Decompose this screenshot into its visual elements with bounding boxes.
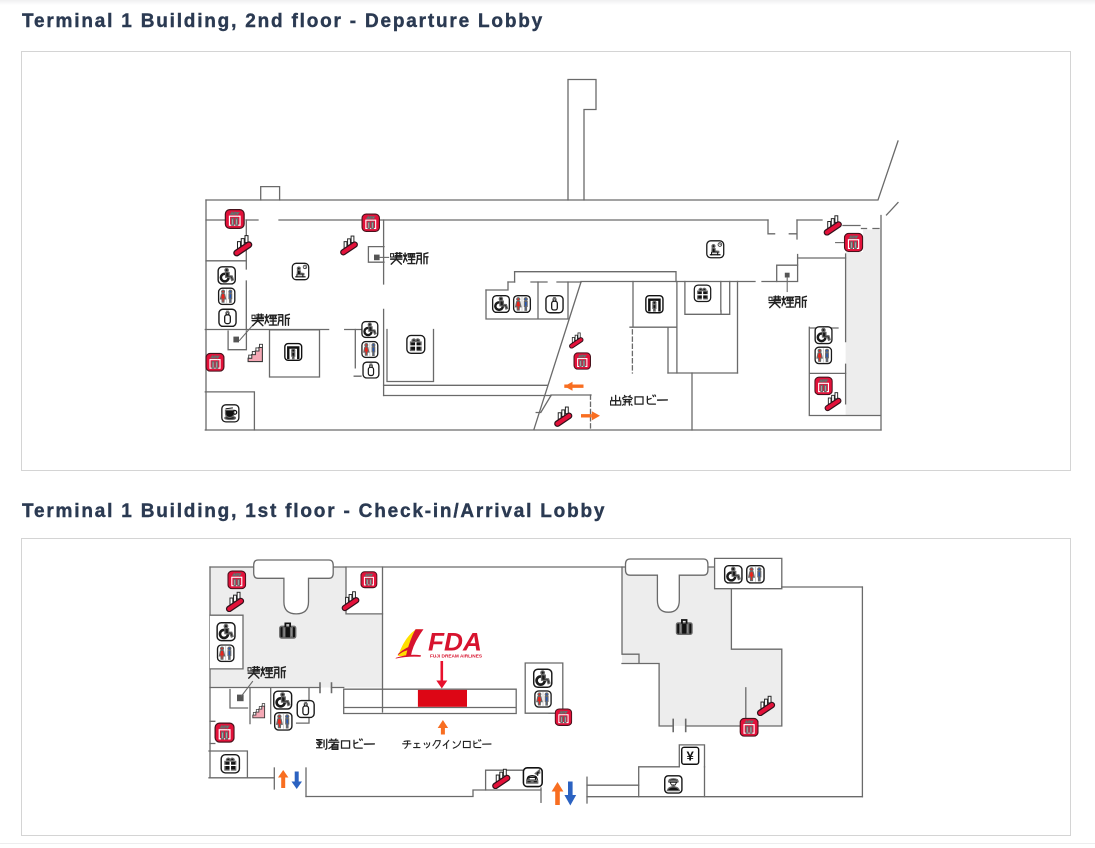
svg-text:FDA: FDA [428,629,482,657]
svg-text:FUJI DREAM AIRLINES: FUJI DREAM AIRLINES [430,654,482,659]
